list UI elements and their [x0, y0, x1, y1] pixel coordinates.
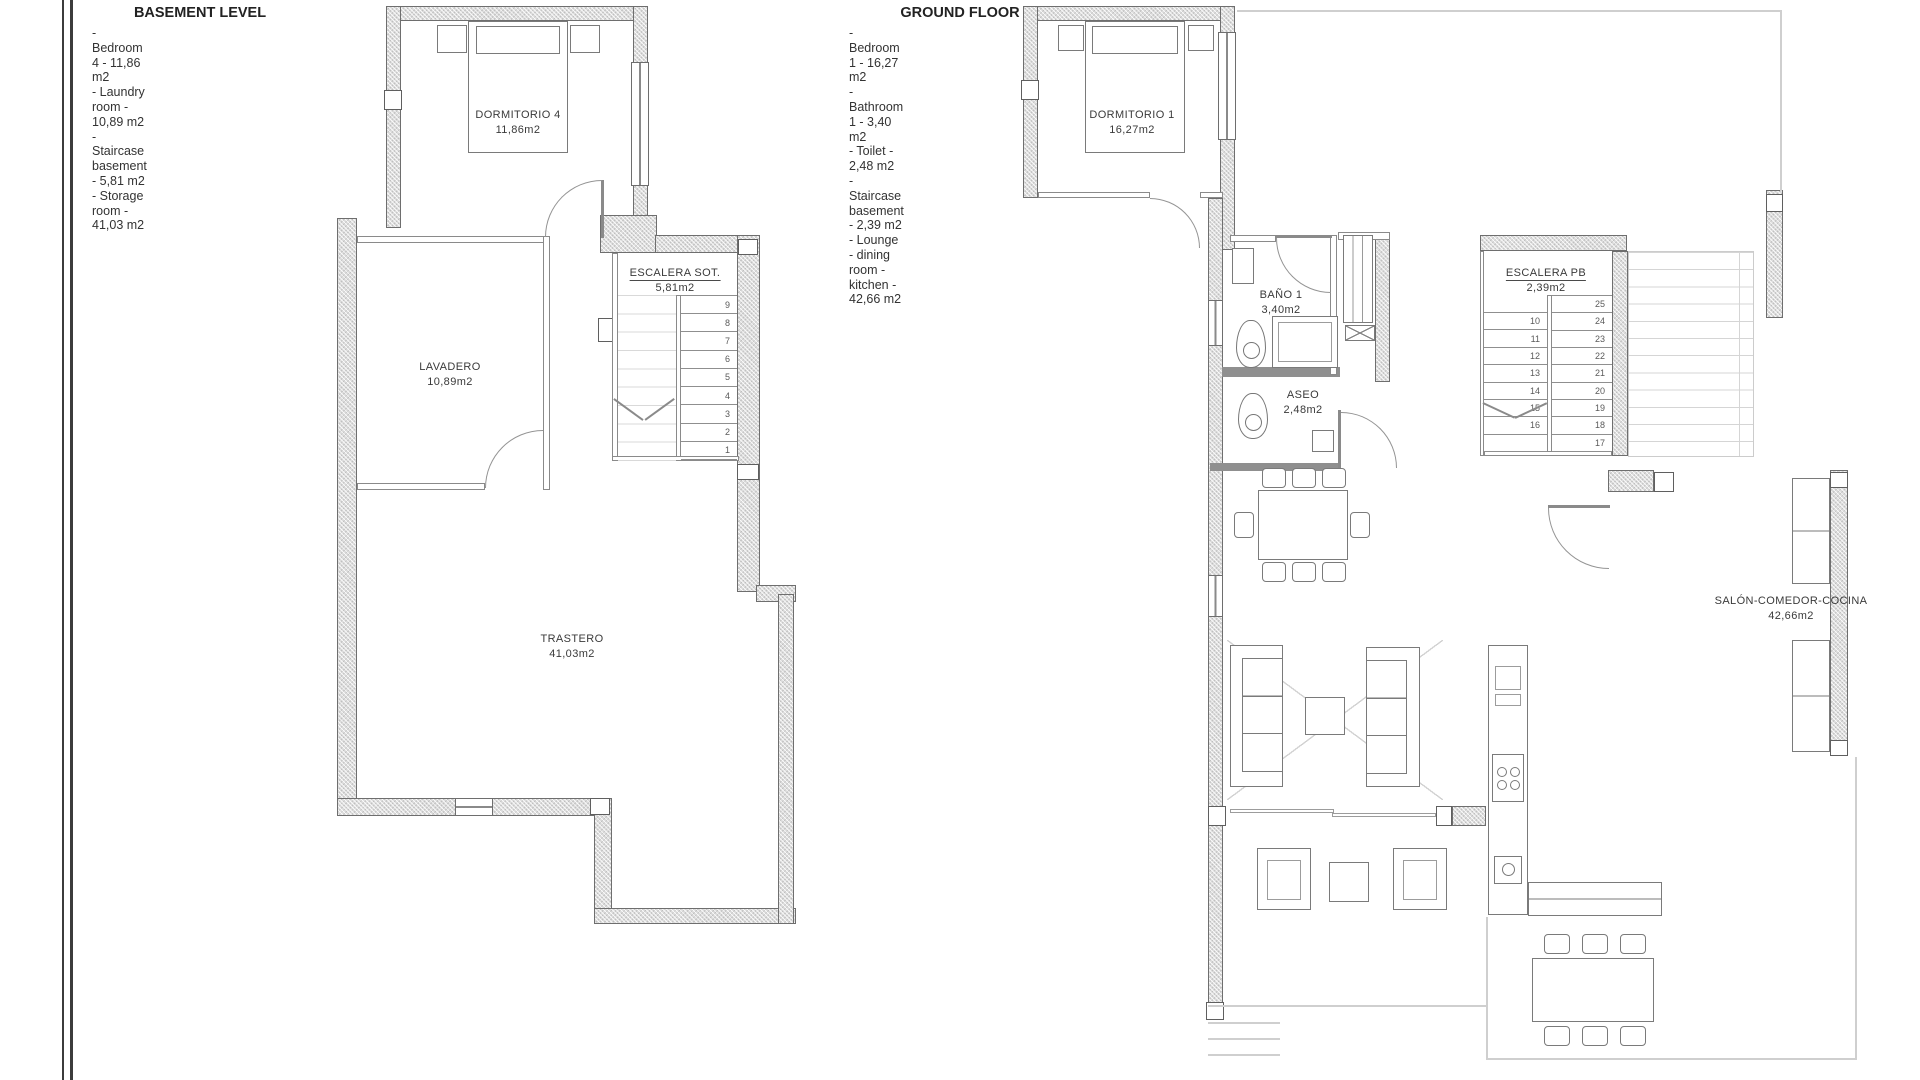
wall-column	[1654, 472, 1674, 492]
wall-segment	[1480, 235, 1627, 251]
stair-step-number: 21	[1552, 364, 1612, 381]
window	[1208, 300, 1223, 346]
stair-treads	[618, 295, 676, 461]
room-label-lavadero: LAVADERO 10,89m2	[419, 360, 480, 389]
stair-step-number: 5	[681, 368, 737, 386]
wall-segment	[1222, 367, 1340, 377]
stair-step-number: 19	[1552, 399, 1612, 416]
dining-chair	[1262, 468, 1286, 488]
outdoor-chair	[1544, 934, 1570, 954]
nightstand	[1188, 25, 1214, 51]
room-name: DORMITORIO 1	[1089, 109, 1174, 121]
burner-icon	[1497, 767, 1507, 777]
room-name: LAVADERO	[419, 361, 480, 373]
wall-segment	[337, 218, 357, 816]
stair-step-number: 9	[681, 295, 737, 313]
legend-ground-items: - Bedroom 1 - 16,27 m2 - Bathroom 1 - 3,…	[849, 26, 904, 307]
room-area: 42,66m2	[1768, 610, 1814, 622]
sofa-cushions	[1242, 658, 1283, 772]
duct-shaft	[1345, 325, 1375, 341]
window-opening	[384, 90, 402, 110]
wall-segment	[594, 908, 796, 924]
stair-step-number: 16	[1484, 416, 1547, 433]
floor-plan-sheet: BASEMENT LEVEL - Bedroom 4 - 11,86 m2 - …	[0, 0, 1920, 1080]
wall-column	[1830, 740, 1848, 756]
dining-chair	[1292, 468, 1316, 488]
wall-segment	[1023, 6, 1235, 21]
outdoor-dining-table	[1532, 958, 1654, 1022]
wall-segment	[1208, 823, 1223, 1005]
room-name: ESCALERA PB	[1506, 267, 1586, 281]
dining-chair	[1350, 512, 1370, 538]
sheet-border-line	[62, 0, 64, 1080]
terrace-boundary-line	[1780, 11, 1782, 191]
wall-column	[738, 239, 758, 255]
burner-icon	[1510, 780, 1520, 790]
nightstand	[1058, 25, 1084, 51]
wall-segment	[1452, 806, 1486, 826]
room-name: SALÓN-COMEDOR-COCINA	[1715, 595, 1868, 607]
toilet-bowl	[1245, 414, 1262, 431]
door-swing-arc	[485, 430, 543, 488]
stair-step-number: 1	[681, 441, 737, 459]
dining-chair	[1322, 562, 1346, 582]
outdoor-chair	[1620, 934, 1646, 954]
wall-segment	[1023, 6, 1038, 198]
room-area: 10,89m2	[427, 376, 473, 388]
wall-segment	[778, 594, 794, 924]
partition-wall	[1230, 235, 1276, 242]
stair-step-number: 24	[1552, 312, 1612, 329]
room-area: 2,39m2	[1526, 282, 1565, 294]
ground-stair-steps-right: 252423222120191817	[1552, 295, 1612, 452]
window	[1218, 32, 1236, 140]
wall-segment	[594, 798, 612, 924]
door-swing-arc	[545, 180, 602, 237]
outdoor-armchair-cushion	[1403, 860, 1437, 900]
kitchen-tall-units	[1792, 640, 1830, 752]
stair-step-number: 6	[681, 350, 737, 368]
terrace-boundary-line	[1237, 10, 1782, 12]
window	[1208, 575, 1223, 617]
washbasin	[1312, 430, 1334, 452]
kitchen-counter	[1528, 882, 1662, 916]
exterior-step-line	[1208, 1022, 1280, 1024]
sheet-border-line	[70, 0, 73, 1080]
room-label-dormitorio1: DORMITORIO 1 16,27m2	[1089, 108, 1174, 137]
closet	[1343, 235, 1373, 323]
stair-step-number: 14	[1484, 382, 1547, 399]
partition-wall	[357, 483, 485, 490]
door-swing-arc	[1341, 412, 1397, 468]
wall-segment	[1608, 470, 1654, 492]
stair-step-number: 18	[1552, 416, 1612, 433]
outdoor-chair	[1582, 934, 1608, 954]
exterior-step-line	[1208, 1054, 1280, 1056]
stair-step-number: 10	[1484, 312, 1547, 329]
terrace-boundary-line	[1208, 1005, 1488, 1007]
dining-chair	[1234, 512, 1254, 538]
room-label-trastero: TRASTERO 41,03m2	[540, 632, 603, 661]
room-name: DORMITORIO 4	[475, 109, 560, 121]
sliding-door-panel	[1332, 813, 1436, 817]
shower-tray-inner	[1278, 322, 1332, 362]
toilet	[1236, 320, 1266, 368]
window-opening	[1021, 80, 1039, 100]
wall-segment	[737, 235, 760, 592]
ground-stair-steps-left: 10111213141516	[1484, 312, 1547, 452]
wall-column	[737, 464, 759, 480]
cooktop	[1492, 754, 1524, 802]
stair-step-number: 20	[1552, 382, 1612, 399]
stair-step-number: 13	[1484, 364, 1547, 381]
window	[631, 62, 649, 186]
kitchen-sink	[1495, 666, 1521, 690]
room-area: 2,48m2	[1283, 404, 1322, 416]
room-area: 11,86m2	[496, 124, 541, 136]
stair-step-number: 4	[681, 386, 737, 404]
stair-step-number	[1484, 434, 1547, 451]
partition-wall	[1038, 192, 1150, 198]
partition-wall	[357, 236, 550, 243]
wall-segment	[1208, 198, 1223, 823]
toilet-bowl	[1243, 342, 1260, 359]
room-name: ASEO	[1287, 389, 1319, 401]
burner-icon	[1510, 767, 1520, 777]
stair-step-number: 23	[1552, 330, 1612, 347]
wall-segment	[1612, 251, 1628, 456]
door-swing-arc	[1150, 198, 1200, 248]
nightstand	[570, 25, 600, 53]
room-label-aseo: ASEO 2,48m2	[1283, 388, 1322, 417]
terrace-boundary-line	[1486, 1058, 1857, 1060]
coffee-table	[1305, 697, 1345, 735]
outdoor-chair	[1582, 1026, 1608, 1046]
wall-segment	[386, 6, 401, 228]
outdoor-side-table	[1329, 862, 1369, 902]
stair-step-number: 17	[1552, 434, 1612, 451]
legend-basement-title: BASEMENT LEVEL	[134, 5, 266, 21]
dining-chair	[1292, 562, 1316, 582]
room-area: 16,27m2	[1109, 124, 1155, 136]
wall-segment	[386, 6, 648, 21]
stair-step-number: 22	[1552, 347, 1612, 364]
room-area: 3,40m2	[1261, 304, 1300, 316]
room-label-salon: SALÓN-COMEDOR-COCINA 42,66m2	[1715, 594, 1868, 623]
kitchen-sink-drainer	[1495, 694, 1521, 706]
room-name: ESCALERA SOT.	[630, 267, 721, 281]
window	[455, 798, 493, 816]
stair-step-number: 12	[1484, 347, 1547, 364]
bathroom-sink-cabinet	[1232, 248, 1254, 284]
toilet	[1238, 393, 1268, 439]
room-area: 5,81m2	[655, 282, 694, 294]
exterior-step-line	[1208, 1038, 1280, 1040]
wall-column	[1830, 472, 1848, 488]
stair-step-number: 3	[681, 404, 737, 422]
sliding-door-panel	[1230, 809, 1334, 813]
legend-ground-title: GROUND FLOOR	[900, 5, 1019, 21]
stair-step-number: 7	[681, 331, 737, 349]
dining-chair	[1262, 562, 1286, 582]
stair-step-number: 2	[681, 423, 737, 441]
kitchen-tall-units	[1792, 478, 1830, 584]
room-label-dormitorio4: DORMITORIO 4 11,86m2	[475, 108, 560, 137]
appliance-knob	[1502, 863, 1515, 876]
room-area: 41,03m2	[549, 648, 595, 660]
stair-step-number: 8	[681, 313, 737, 331]
upper-flight-stairs	[1628, 251, 1754, 457]
partition-wall	[1200, 192, 1223, 198]
terrace-boundary-line	[1855, 757, 1857, 1060]
bed-pillow	[1092, 26, 1178, 54]
stair-step-number: 11	[1484, 329, 1547, 346]
room-name: TRASTERO	[540, 633, 603, 645]
terrace-boundary-line	[1486, 917, 1488, 1060]
legend-basement-items: - Bedroom 4 - 11,86 m2 - Laundry room - …	[92, 26, 147, 233]
basement-stair-steps: 987654321	[681, 295, 737, 460]
room-name: BAÑO 1	[1260, 289, 1303, 301]
outdoor-chair	[1544, 1026, 1570, 1046]
room-label-bano1: BAÑO 1 3,40m2	[1260, 288, 1303, 317]
nightstand	[437, 25, 467, 53]
bed-pillow	[476, 26, 560, 54]
outdoor-chair	[1620, 1026, 1646, 1046]
wall-column	[1766, 194, 1783, 212]
dining-table	[1258, 490, 1348, 560]
outdoor-armchair-cushion	[1267, 860, 1301, 900]
wall-segment	[1375, 232, 1390, 382]
sofa-cushions	[1366, 660, 1407, 774]
partition-wall	[543, 236, 550, 490]
wall-column	[1208, 806, 1226, 826]
room-label-escalera-pb: ESCALERA PB 2,39m2	[1506, 266, 1586, 295]
door-swing-arc	[1276, 238, 1331, 293]
wall-column	[1436, 806, 1452, 826]
room-label-escalera-sot: ESCALERA SOT. 5,81m2	[630, 266, 721, 295]
wall-segment	[600, 215, 657, 253]
wall-segment	[655, 235, 739, 253]
wall-column	[590, 798, 610, 815]
dining-chair	[1322, 468, 1346, 488]
burner-icon	[1497, 780, 1507, 790]
door-swing-arc	[1548, 508, 1609, 569]
stair-step-number: 25	[1552, 295, 1612, 312]
